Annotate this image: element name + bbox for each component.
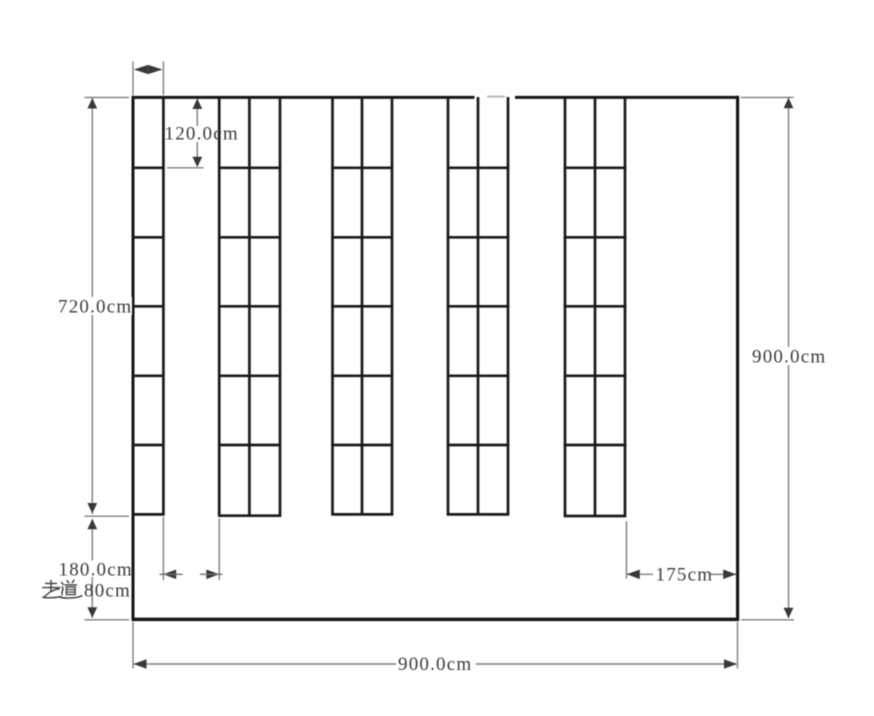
svg-text:900.0cm: 900.0cm xyxy=(752,347,826,368)
svg-text:80cm: 80cm xyxy=(84,581,131,602)
svg-text:120.0cm: 120.0cm xyxy=(165,124,239,145)
svg-text:175cm: 175cm xyxy=(656,565,714,586)
svg-text:720.0cm: 720.0cm xyxy=(58,297,132,318)
svg-text:180.0cm: 180.0cm xyxy=(59,560,133,581)
svg-text:900.0cm: 900.0cm xyxy=(398,654,472,675)
